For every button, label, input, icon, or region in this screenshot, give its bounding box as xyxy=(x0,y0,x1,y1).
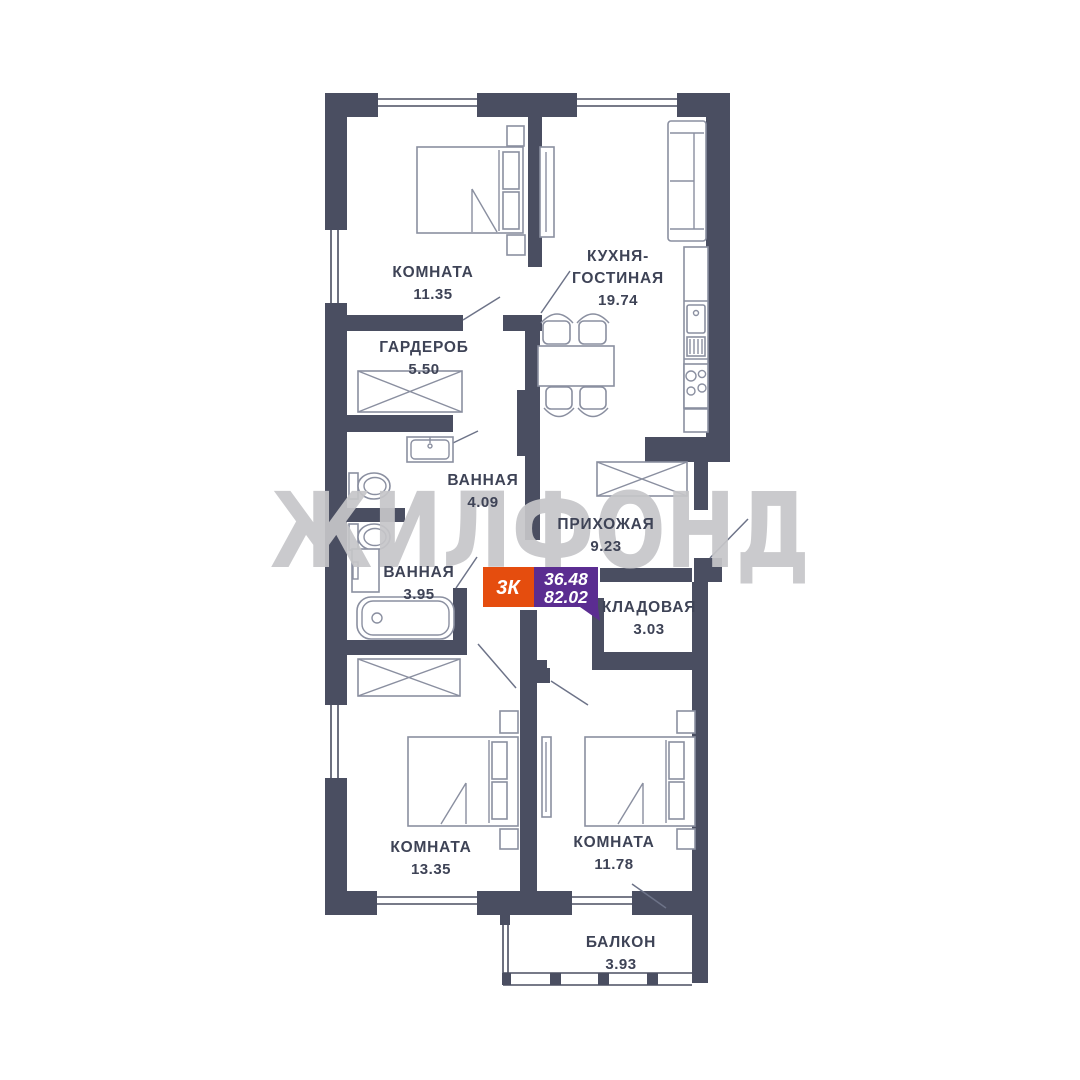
mirror-cabinet xyxy=(542,737,551,817)
bed-right xyxy=(585,737,695,826)
area-hallway: 9.23 xyxy=(590,538,621,555)
washbasin xyxy=(407,437,453,462)
nightstand xyxy=(500,829,518,849)
label-kitchen-2: ГОСТИНАЯ xyxy=(572,270,664,287)
floor-plan: ЖИЛФОНД КОМНАТА 11.35 КУХНЯ- ГОСТИНАЯ 19… xyxy=(0,0,1080,1080)
label-bedroom-right: КОМНАТА xyxy=(573,834,654,851)
area-kitchen: 19.74 xyxy=(598,292,638,309)
label-kitchen-1: КУХНЯ- xyxy=(587,248,649,265)
nightstand xyxy=(677,829,695,849)
kitchen-sink xyxy=(687,305,705,356)
area-bathroom-bottom: 3.95 xyxy=(403,586,434,603)
apartment-badge: 3К 36.48 82.02 xyxy=(483,567,600,621)
badge-total-area: 82.02 xyxy=(544,587,588,607)
label-balcony: БАЛКОН xyxy=(586,934,656,951)
label-bedroom-left: КОМНАТА xyxy=(390,839,471,856)
nightstand xyxy=(500,711,518,733)
area-bedroom-right: 11.78 xyxy=(594,856,633,873)
label-bathroom-top: ВАННАЯ xyxy=(447,472,518,489)
area-wardrobe: 5.50 xyxy=(408,361,439,378)
nightstand xyxy=(677,711,695,733)
chair xyxy=(578,387,608,417)
chair xyxy=(577,314,609,344)
floor-plan-page: ЖИЛФОНД КОМНАТА 11.35 КУХНЯ- ГОСТИНАЯ 19… xyxy=(0,0,1080,1080)
tall-cabinet xyxy=(540,147,554,237)
label-bathroom-bottom: ВАННАЯ xyxy=(383,564,454,581)
badge-type-text: 3К xyxy=(496,577,521,599)
area-bedroom-left: 13.35 xyxy=(411,861,451,878)
label-storage: КЛАДОВАЯ xyxy=(602,599,696,616)
bathtub xyxy=(357,597,454,639)
bed-top xyxy=(417,147,523,233)
chair xyxy=(541,314,573,344)
area-storage: 3.03 xyxy=(633,621,664,638)
nightstand xyxy=(507,235,525,255)
area-bedroom-top: 11.35 xyxy=(413,286,452,303)
label-wardrobe: ГАРДЕРОБ xyxy=(379,339,468,356)
dining-table xyxy=(538,314,614,417)
sofa xyxy=(668,121,706,241)
area-bathroom-top: 4.09 xyxy=(467,494,498,511)
bed-left xyxy=(408,737,518,826)
chair xyxy=(544,387,574,417)
closet-box xyxy=(358,659,460,696)
kitchen-counter xyxy=(684,247,708,432)
area-balcony: 3.93 xyxy=(605,956,636,973)
badge-living-area: 36.48 xyxy=(544,569,588,589)
stove xyxy=(684,364,708,408)
label-hallway: ПРИХОЖАЯ xyxy=(557,516,654,533)
nightstand xyxy=(507,126,524,146)
label-bedroom-top: КОМНАТА xyxy=(392,264,473,281)
